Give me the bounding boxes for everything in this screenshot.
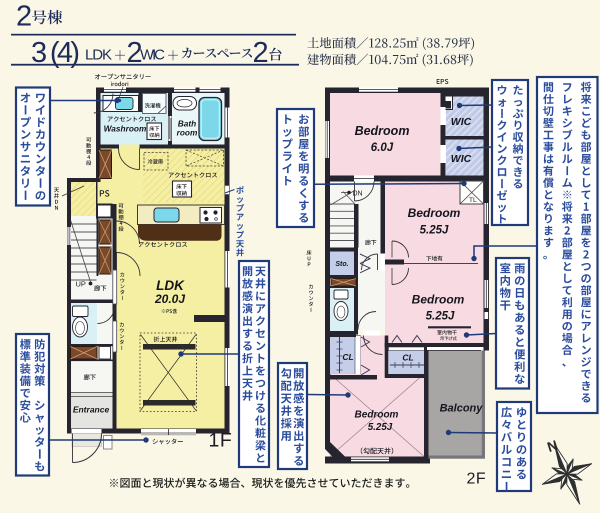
svg-text:Bedroom: Bedroom — [408, 206, 461, 220]
svg-text:2: 2 — [16, 1, 32, 33]
svg-text:20.0J: 20.0J — [154, 292, 185, 306]
svg-text:Washroom: Washroom — [104, 124, 147, 134]
svg-text:Sto.: Sto. — [335, 261, 348, 268]
svg-text:room: room — [177, 128, 198, 138]
svg-text:Balcony: Balcony — [440, 403, 484, 415]
svg-text:WIC: WIC — [451, 116, 472, 128]
svg-text:5.25J: 5.25J — [420, 225, 449, 237]
svg-text:2F: 2F — [467, 471, 487, 488]
svg-text:Entrance: Entrance — [73, 405, 110, 415]
svg-text:UP: UP — [76, 280, 86, 289]
svg-text:CL: CL — [402, 353, 413, 363]
svg-text:LDK: LDK — [85, 47, 112, 64]
svg-text:Bedroom: Bedroom — [355, 124, 410, 138]
svg-text:TL: TL — [469, 197, 477, 204]
svg-text:CL: CL — [342, 352, 353, 362]
svg-text:Bedroom: Bedroom — [412, 293, 465, 307]
svg-text:DN: DN — [353, 191, 363, 198]
svg-text:1F: 1F — [209, 430, 233, 452]
svg-text:6.0J: 6.0J — [371, 142, 394, 154]
svg-text:LDK: LDK — [156, 278, 185, 293]
svg-text:WIC: WIC — [140, 47, 165, 64]
svg-text:WIC: WIC — [451, 153, 472, 165]
svg-text:Bedroom: Bedroom — [355, 410, 399, 421]
svg-text:5.25J: 5.25J — [368, 422, 393, 433]
svg-text:5.25J: 5.25J — [426, 311, 455, 323]
